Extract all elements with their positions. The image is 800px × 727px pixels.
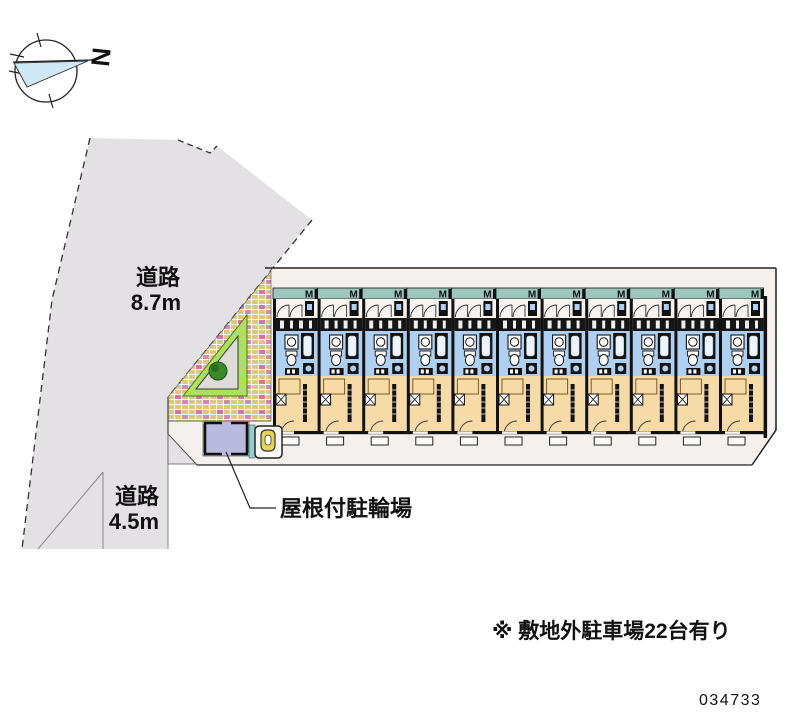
compass-north-label: N [85,46,117,68]
bicycle-parking-label: 屋根付駐輪場 [280,496,412,521]
road-s-width: 4.5m [109,509,159,534]
building-unit [318,288,363,445]
road-s-name: 道路 [115,484,160,509]
building-unit [630,288,675,445]
vending-slot [265,435,271,445]
building-unit [362,288,407,445]
offsite-parking-note: ※ 敷地外駐車場22台有り [492,619,731,643]
road-label-south: 道路 4.5m [109,484,160,534]
compass-rose: N [9,33,117,108]
tree-inner [211,364,219,372]
building-unit [585,288,630,445]
building-unit [674,288,719,445]
site-plan-page: M [0,0,800,727]
road-nw-width: 8.7m [131,290,181,315]
tree-symbol [209,362,227,380]
building-right-wall [764,296,768,438]
site-plan: M [0,0,800,727]
bike-shed-area [203,421,249,456]
building-unit [496,288,541,445]
building-units [273,288,764,445]
road-nw-name: 道路 [136,265,181,290]
building-unit [541,288,586,445]
vending-machine [249,425,282,458]
road-label-nw: 道路 8.7m [131,265,181,315]
building-unit [407,288,452,445]
building-unit [451,288,496,445]
vending-side-strip [249,425,255,458]
plan-number: 034733 [699,692,761,709]
bike-shed [203,421,249,456]
building-unit [273,288,318,445]
building-unit [719,288,764,445]
